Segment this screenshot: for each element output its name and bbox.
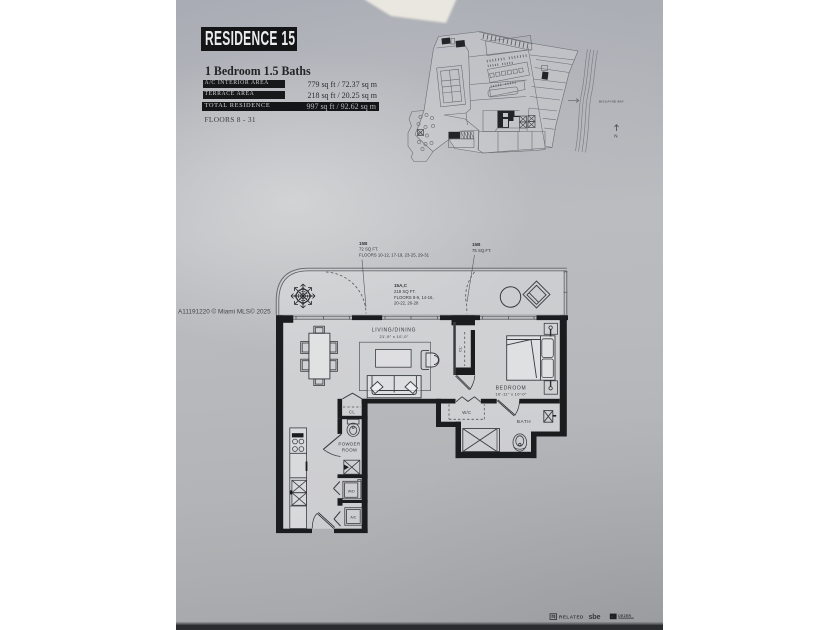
svg-text:15B: 15B: [359, 241, 368, 246]
svg-text:POWDER: POWDER: [338, 442, 360, 447]
svg-text:N: N: [614, 134, 617, 139]
svg-text:W/C: W/C: [462, 410, 471, 415]
svg-text:75 SQ.FT.: 75 SQ.FT.: [472, 248, 491, 253]
svg-text:BATH: BATH: [517, 419, 531, 424]
svg-text:RELATED: RELATED: [559, 615, 584, 620]
svg-text:W/D: W/D: [348, 489, 355, 493]
svg-text:BISCAYNE BAY: BISCAYNE BAY: [599, 100, 624, 104]
svg-text:15B: 15B: [472, 242, 481, 247]
svg-text:15A,C: 15A,C: [394, 283, 408, 288]
svg-text:DEZER: DEZER: [618, 614, 631, 618]
svg-text:10'-11" x 10'-0": 10'-11" x 10'-0": [495, 391, 527, 396]
svg-text:20-22, 26-28: 20-22, 26-28: [394, 301, 419, 306]
svg-text:LIVING/DINING: LIVING/DINING: [372, 328, 416, 334]
svg-text:CL': CL': [458, 346, 463, 352]
svg-text:A/C: A/C: [350, 516, 356, 520]
svg-text:72 SQ FT.: 72 SQ FT.: [359, 247, 378, 252]
svg-text:CL: CL: [349, 410, 355, 415]
svg-text:218 SQ FT.: 218 SQ FT.: [394, 289, 416, 294]
svg-text:21'-9" x 10'-0": 21'-9" x 10'-0": [379, 334, 408, 339]
svg-text:sbe: sbe: [589, 612, 601, 621]
svg-text:FLOORS 8-9, 14-16,: FLOORS 8-9, 14-16,: [394, 295, 434, 300]
svg-text:A11191220 © Miami MLS© 2025: A11191220 © Miami MLS© 2025: [178, 308, 271, 316]
svg-text:ROOM: ROOM: [342, 447, 357, 452]
svg-text:FLOORS 10-12, 17-19, 23-25, 29: FLOORS 10-12, 17-19, 23-25, 29-31: [359, 252, 430, 257]
